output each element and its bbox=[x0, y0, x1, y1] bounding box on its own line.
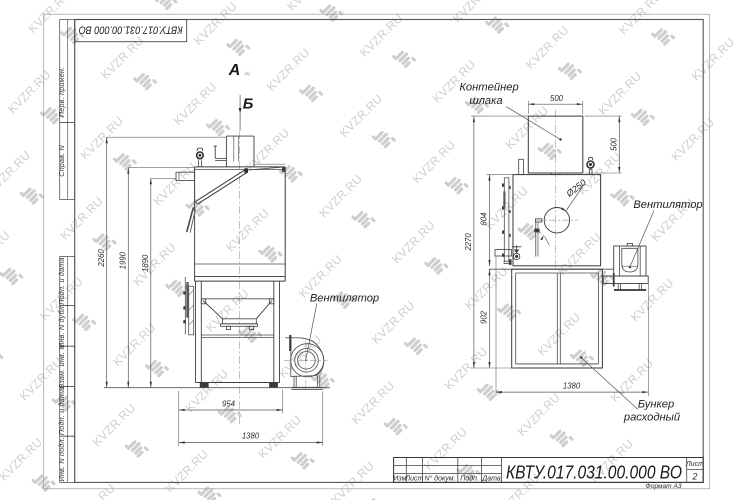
svg-text:Дата: Дата bbox=[481, 476, 501, 483]
svg-text:Лист: Лист bbox=[685, 461, 704, 468]
svg-text:804: 804 bbox=[480, 212, 489, 226]
svg-text:1890: 1890 bbox=[141, 254, 150, 272]
svg-text:Справ. N: Справ. N bbox=[57, 144, 66, 176]
svg-text:2260: 2260 bbox=[97, 249, 106, 268]
svg-text:954: 954 bbox=[222, 400, 236, 409]
svg-text:Вентилятор: Вентилятор bbox=[633, 199, 702, 211]
svg-text:Подп. и дата: Подп. и дата bbox=[57, 257, 66, 304]
svg-text:Бункер: Бункер bbox=[638, 399, 675, 411]
svg-text:Подп.: Подп. bbox=[460, 475, 479, 483]
svg-text:Инв. N подл.: Инв. N подл. bbox=[57, 437, 66, 481]
svg-text:N° докум.: N° докум. bbox=[424, 475, 455, 483]
svg-text:1380: 1380 bbox=[563, 381, 581, 390]
svg-text:500: 500 bbox=[609, 137, 618, 151]
svg-text:(г): (г) bbox=[245, 71, 251, 76]
svg-text:902: 902 bbox=[480, 310, 489, 324]
svg-text:Б: Б bbox=[243, 95, 254, 112]
svg-text:Лист: Лист bbox=[404, 476, 423, 483]
svg-text:Инв. N дубл.: Инв. N дубл. bbox=[57, 304, 66, 348]
svg-text:2270: 2270 bbox=[464, 233, 473, 252]
svg-text:1380: 1380 bbox=[242, 432, 260, 441]
svg-text:Формат А3: Формат А3 bbox=[645, 483, 681, 490]
svg-text:1990: 1990 bbox=[119, 251, 128, 269]
svg-text:500: 500 bbox=[550, 94, 564, 103]
svg-text:А: А bbox=[228, 62, 241, 79]
svg-text:Вентилятор: Вентилятор bbox=[310, 292, 379, 304]
svg-text:КВТУ.017.031.00.000 ВО: КВТУ.017.031.00.000 ВО bbox=[506, 462, 682, 482]
svg-text:шлака: шлака bbox=[469, 95, 502, 107]
svg-text:Взам. инв. N: Взам. инв. N bbox=[57, 344, 66, 389]
svg-text:2: 2 bbox=[691, 472, 697, 482]
svg-text:Контейнер: Контейнер bbox=[459, 82, 518, 94]
svg-text:Подп. и дата: Подп. и дата bbox=[57, 388, 66, 435]
svg-text:Перв. примен.: Перв. примен. bbox=[57, 67, 66, 117]
svg-text:КВТУ.017.031.00.000 ВО: КВТУ.017.031.00.000 ВО bbox=[78, 24, 182, 36]
svg-text:расходный: расходный bbox=[623, 412, 680, 424]
